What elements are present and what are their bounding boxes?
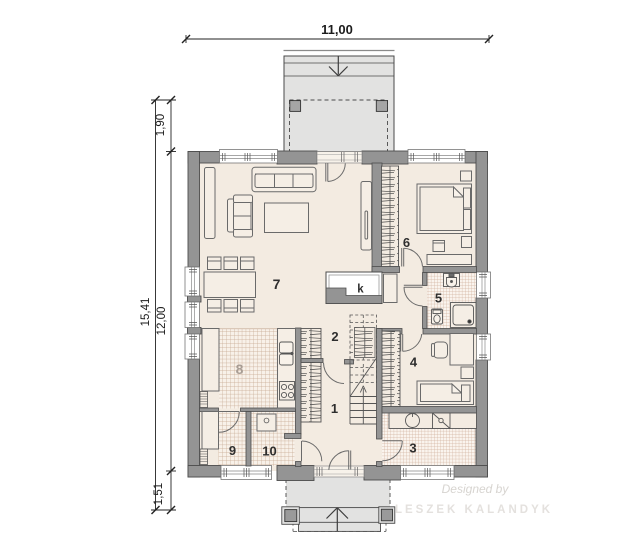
svg-text:11,00: 11,00 — [321, 22, 353, 37]
svg-text:7: 7 — [273, 276, 281, 292]
svg-text:4: 4 — [410, 355, 418, 370]
svg-text:10: 10 — [262, 444, 276, 459]
svg-text:1,51: 1,51 — [153, 483, 165, 505]
svg-text:12,00: 12,00 — [156, 307, 168, 336]
svg-text:1,90: 1,90 — [155, 114, 167, 136]
svg-text:2: 2 — [331, 329, 338, 344]
svg-text:15,41: 15,41 — [140, 298, 152, 327]
svg-text:5: 5 — [435, 291, 442, 306]
svg-text:Designed by: Designed by — [442, 482, 510, 496]
svg-text:LESZEK KALANDYK: LESZEK KALANDYK — [395, 504, 553, 516]
svg-text:6: 6 — [403, 235, 410, 250]
svg-text:8: 8 — [236, 361, 244, 377]
svg-text:3: 3 — [409, 441, 416, 456]
svg-text:9: 9 — [229, 443, 236, 458]
svg-text:1: 1 — [331, 401, 338, 416]
svg-text:k: k — [357, 284, 364, 296]
